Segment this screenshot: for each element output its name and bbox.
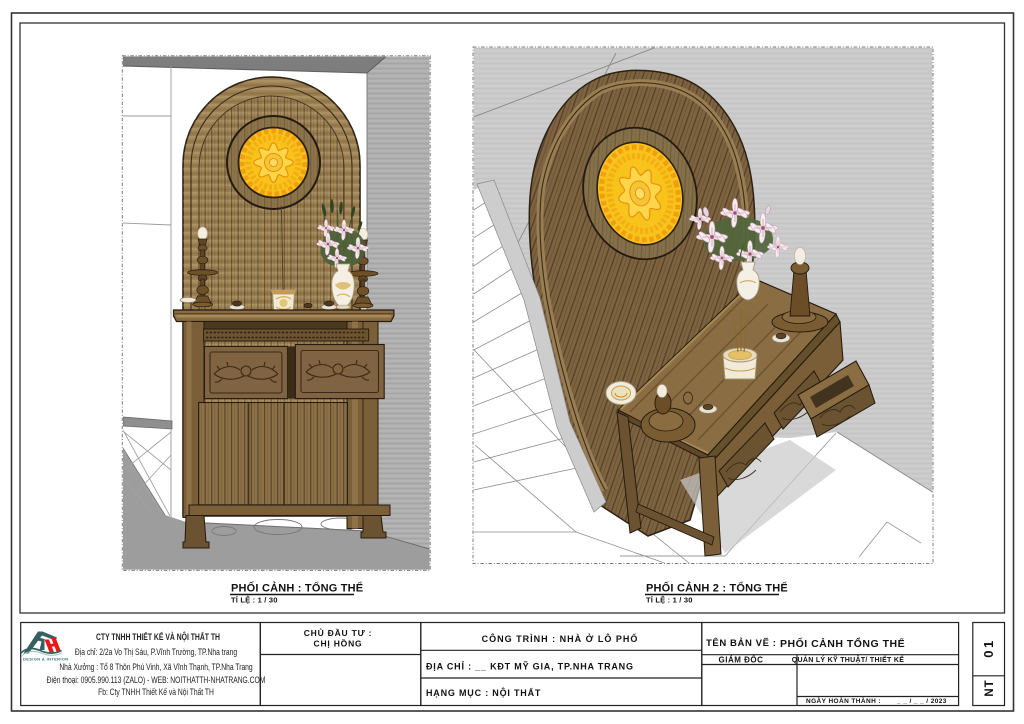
svg-text:Nhà Xưởng : Tổ 8 Thôn Phú Vinh: Nhà Xưởng : Tổ 8 Thôn Phú Vinh, Xã Vĩnh … xyxy=(59,661,253,673)
svg-text:PHỐI CẢNH TỔNG THỂ: PHỐI CẢNH TỔNG THỂ xyxy=(780,636,905,650)
svg-text:ĐỊA CHỈ : __ KĐT MỸ GIA, TP.NH: ĐỊA CHỈ : __ KĐT MỸ GIA, TP.NHA TRANG xyxy=(426,661,634,672)
svg-text:NT: NT xyxy=(984,679,996,696)
svg-text:CHỊ HỒNG: CHỊ HỒNG xyxy=(314,638,363,649)
svg-text:CHỦ ĐẦU TƯ :: CHỦ ĐẦU TƯ : xyxy=(304,627,373,638)
svg-text:TÊN BẢN VẼ :: TÊN BẢN VẼ : xyxy=(706,637,777,649)
svg-text:Điện thoại: 0905.990.113 (ZALO: Điện thoại: 0905.990.113 (ZALO) - WEB: N… xyxy=(47,675,266,685)
svg-text:Địa chỉ: 2/2a Vo Thị Sáu, P.Vĩ: Địa chỉ: 2/2a Vo Thị Sáu, P.Vĩnh Trường,… xyxy=(75,647,238,657)
svg-text:_ _ / _ _ / 2023: _ _ / _ _ / 2023 xyxy=(896,698,947,705)
svg-text:HẠNG MỤC : NỘI THẤT: HẠNG MỤC : NỘI THẤT xyxy=(426,687,541,698)
svg-text:TỈ LỆ : 1 / 30: TỈ LỆ : 1 / 30 xyxy=(646,596,693,605)
svg-text:TỈ LỆ : 1 / 30: TỈ LỆ : 1 / 30 xyxy=(231,596,278,605)
svg-text:CÔNG TRÌNH : NHÀ Ở LÔ PHỐ: CÔNG TRÌNH : NHÀ Ở LÔ PHỐ xyxy=(482,633,639,644)
svg-text:Fb: Cty TNHH Thiết Kế và Nội T: Fb: Cty TNHH Thiết Kế và Nội Thất TH xyxy=(98,687,214,697)
svg-text:DESIGN & INTERIOR: DESIGN & INTERIOR xyxy=(23,657,69,662)
svg-text:PHỐI CẢNH 2 : TỔNG THỂ: PHỐI CẢNH 2 : TỔNG THỂ xyxy=(646,581,788,595)
svg-text:NGÀY HOÀN THÀNH :: NGÀY HOÀN THÀNH : xyxy=(806,696,881,705)
svg-text:CTY TNHH THIẾT KẾ VÀ NỘI THẤT: CTY TNHH THIẾT KẾ VÀ NỘI THẤT TH xyxy=(96,631,220,642)
svg-text:GIÁM ĐỐC: GIÁM ĐỐC xyxy=(719,655,764,665)
svg-text:01: 01 xyxy=(981,638,996,657)
svg-text:PHỐI CẢNH : TỔNG THỂ: PHỐI CẢNH : TỔNG THỂ xyxy=(231,581,363,595)
